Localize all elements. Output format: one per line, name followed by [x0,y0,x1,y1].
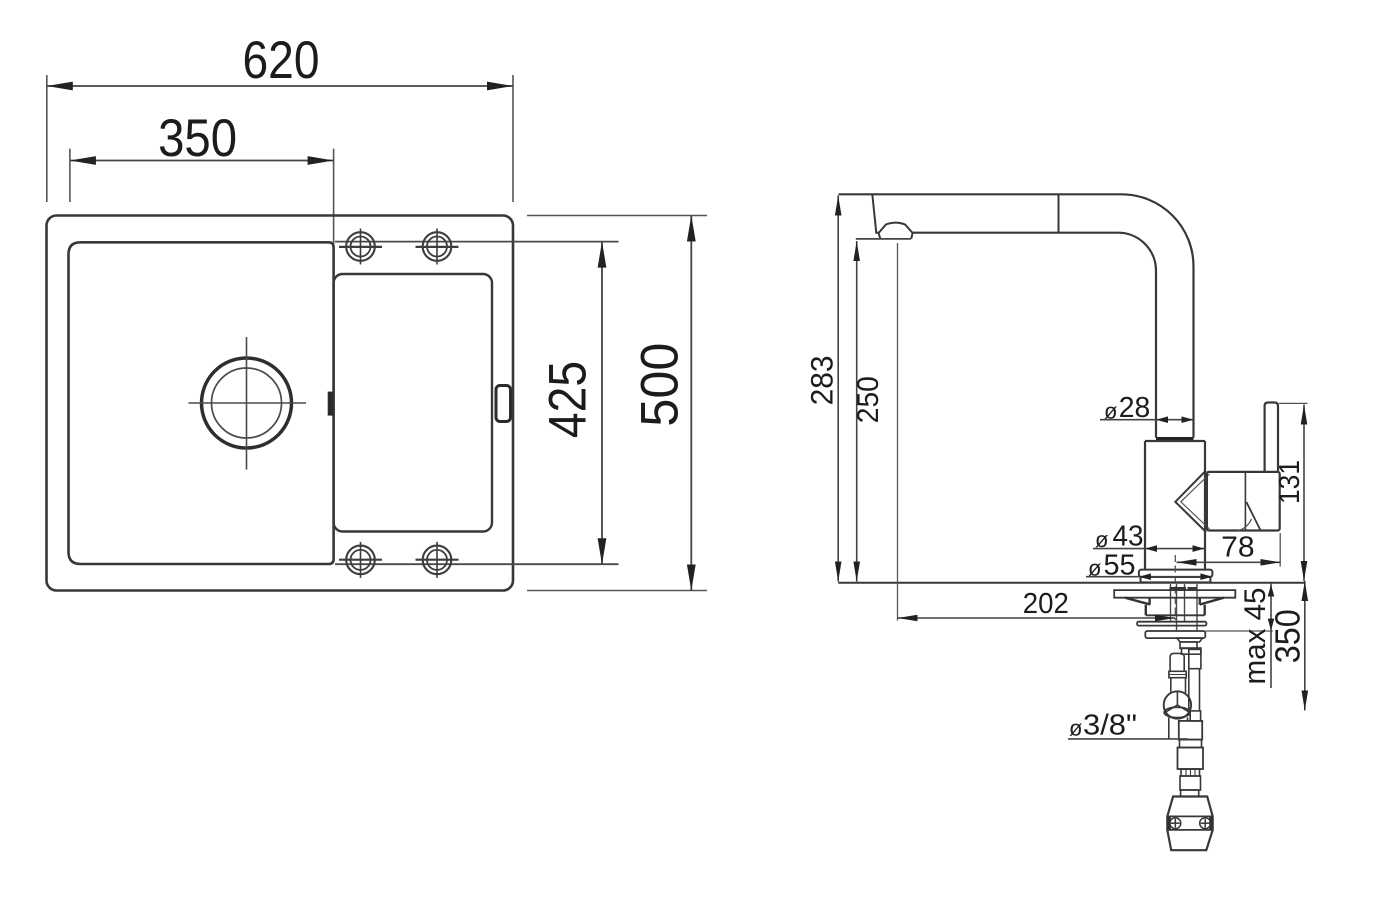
svg-text:ø: ø [1095,527,1108,552]
svg-text:500: 500 [631,343,690,427]
svg-text:28: 28 [1119,392,1151,424]
svg-text:250: 250 [852,376,885,423]
svg-text:131: 131 [1274,460,1306,504]
svg-text:ø: ø [1088,556,1101,581]
svg-text:ø: ø [1069,716,1082,741]
svg-text:425: 425 [538,361,597,438]
svg-text:78: 78 [1221,532,1254,564]
svg-text:3/8": 3/8" [1083,710,1137,742]
svg-text:max 45: max 45 [1239,588,1272,685]
svg-text:55: 55 [1104,550,1136,582]
svg-text:202: 202 [1023,588,1069,620]
svg-text:43: 43 [1113,521,1144,553]
svg-text:283: 283 [805,355,840,405]
svg-text:350: 350 [158,109,237,168]
svg-text:350: 350 [1269,609,1308,663]
svg-text:ø: ø [1104,399,1117,424]
svg-text:620: 620 [243,31,320,90]
